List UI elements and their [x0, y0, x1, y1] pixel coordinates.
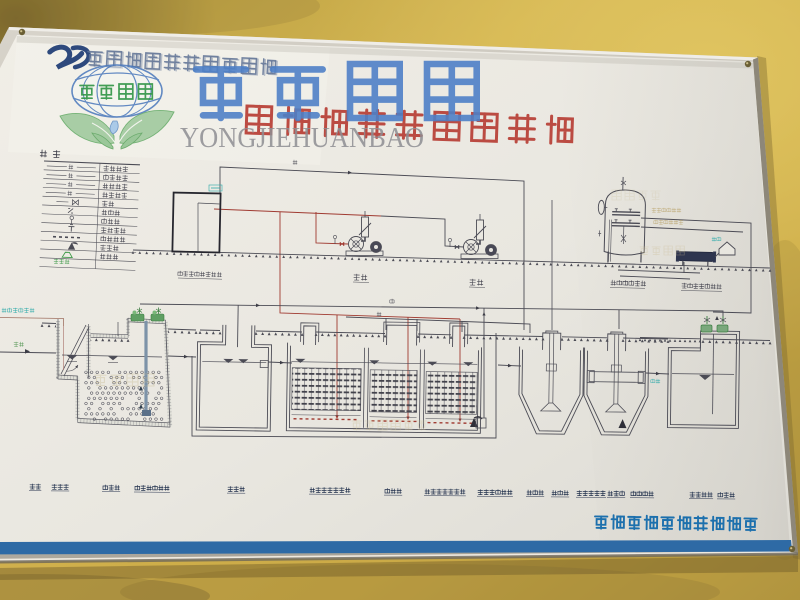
svg-text:YONGJIEHUANBAO: YONGJIEHUANBAO	[180, 123, 424, 154]
